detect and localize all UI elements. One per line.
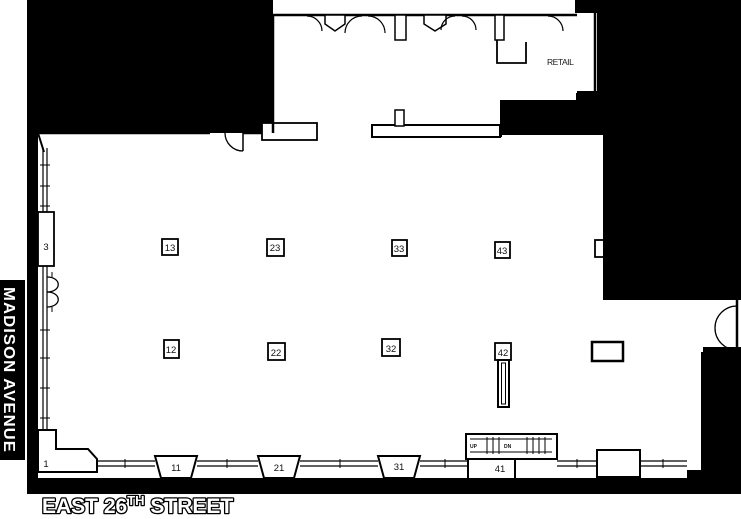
street-label-madison-avenue: MADISON AVENUE: [0, 287, 17, 453]
street-label-east-26th: EAST 26TH STREET: [42, 493, 233, 518]
left-wall-top-corner: [38, 133, 58, 152]
column-13-label: 13: [165, 243, 176, 254]
wall-tab: [395, 110, 404, 126]
freestanding-wall: [372, 100, 501, 137]
east-26th-suffix: STREET: [145, 495, 234, 518]
left-wall: 3: [38, 133, 58, 452]
masked-regions: [0, 0, 741, 494]
mask-top-left: [27, 0, 273, 478]
column-33-label: 33: [394, 244, 405, 255]
column-42-label: 42: [498, 348, 509, 359]
column-23-label: 23: [270, 243, 281, 254]
column-31-label: 31: [394, 462, 405, 473]
retail-vestibule: [497, 40, 526, 63]
escalator-dn-label: DN: [504, 444, 512, 450]
east-26th-superscript: TH: [127, 493, 144, 508]
column-42-wall-stub: [498, 360, 509, 407]
column-1-label: 1: [43, 459, 48, 470]
column-22-label: 22: [271, 348, 282, 359]
column-41-pier: [468, 457, 515, 479]
column-3-label: 3: [43, 242, 48, 253]
column-grid: 13 23 33 43 12 22 32 42: [162, 238, 612, 407]
column-12-label: 12: [166, 345, 177, 356]
column-3-bay: [38, 212, 54, 266]
column-partial-mask: [603, 238, 612, 259]
right-double-door-arcs: [715, 306, 737, 350]
east-26th-prefix: EAST 26: [42, 495, 127, 518]
column-32-label: 32: [386, 344, 397, 355]
column-41-label: 41: [495, 464, 506, 475]
mask-top-right: [502, 0, 741, 300]
window-mullions-left: [40, 165, 50, 438]
escalator-up-label: UP: [470, 444, 478, 450]
interior-door-arc: [225, 133, 243, 151]
mask-bottom-band: [27, 478, 741, 494]
column-43-label: 43: [497, 246, 508, 257]
escalator: UP DN: [466, 434, 557, 459]
street-wall: 1 11 21 31 41: [38, 430, 687, 479]
column-21-label: 21: [274, 463, 285, 474]
wall-step-piece: [262, 123, 317, 140]
street-pier: [597, 450, 640, 477]
column-11-label: 11: [171, 463, 181, 474]
right-small-room: [592, 342, 623, 361]
floor-plan: 3: [0, 0, 741, 519]
left-entrance-door-arcs: [47, 272, 58, 312]
retail-label: RETAIL: [547, 57, 575, 67]
